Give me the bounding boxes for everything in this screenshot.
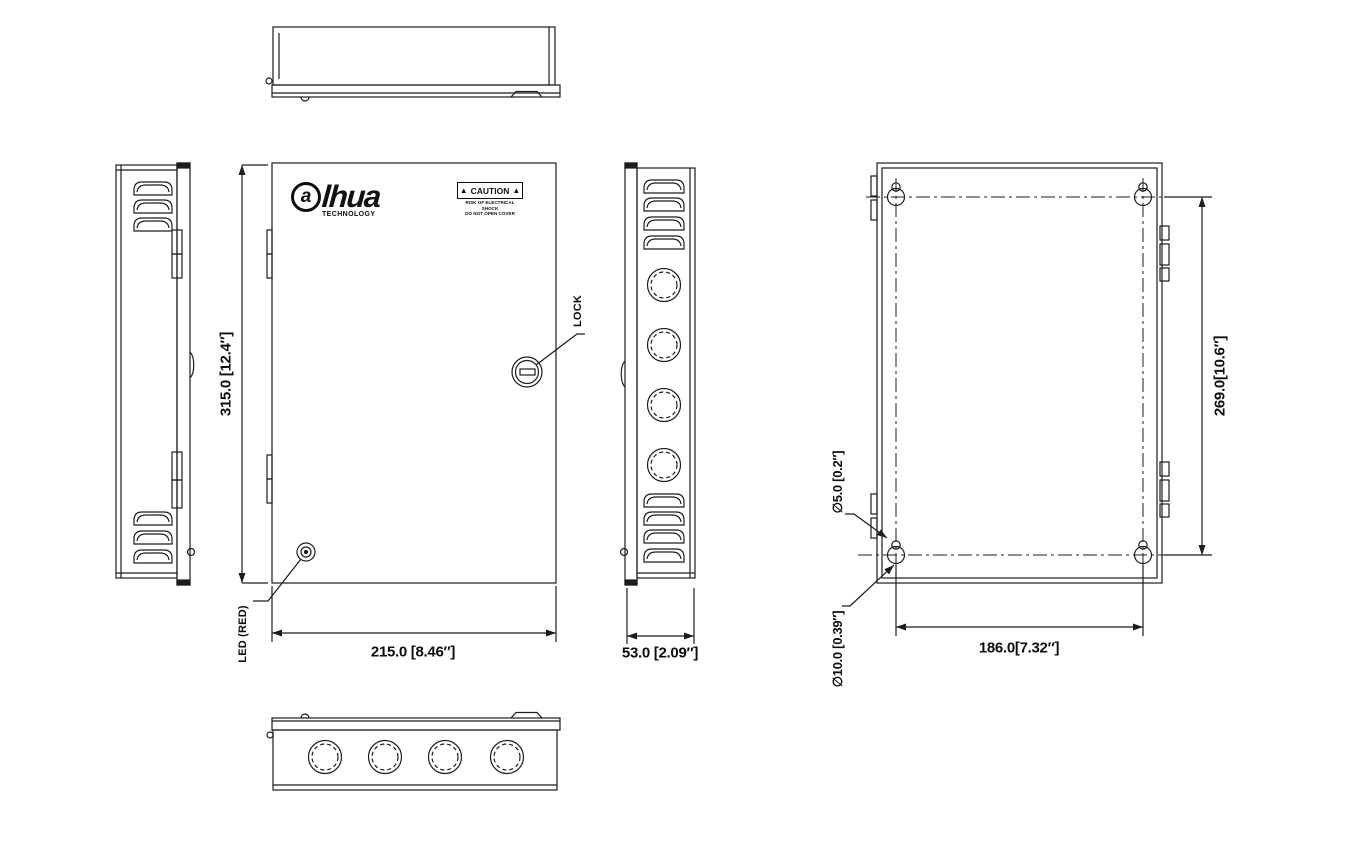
hole-small-diameter-label: ∅5.0 [0.2″] <box>830 451 846 514</box>
front-view <box>253 163 585 601</box>
right-side-view <box>621 163 696 585</box>
lock-leader-line <box>536 334 585 365</box>
hinge <box>267 254 272 278</box>
keyhole-mount-slots <box>888 183 1152 564</box>
warning-triangle-icon: ▲ <box>512 187 520 195</box>
engineering-drawing-page: 315.0 [12.4″] 215.0 [8.46″] 53.0 [2.09″]… <box>0 0 1356 855</box>
vent-louvers-top <box>644 180 684 249</box>
led-indicator-icon <box>297 543 315 561</box>
led-side <box>188 549 195 556</box>
warning-triangle-icon: ▲ <box>460 187 468 195</box>
bottom-view <box>267 713 560 791</box>
centerlines <box>858 178 1181 568</box>
edge-clips <box>871 176 1169 538</box>
hinge <box>267 455 272 479</box>
led-callout-label: LED (RED) <box>237 605 249 662</box>
vent-louvers-bottom <box>134 512 172 563</box>
hinge-pin-icon <box>267 732 273 738</box>
caution-line1: RISK OF ELECTRICAL SHOCK <box>457 200 523 211</box>
led-leader-line <box>253 559 301 601</box>
lock-bump <box>511 713 542 719</box>
logo-circled-a: a <box>291 182 321 212</box>
hinge <box>267 479 272 503</box>
dimension-lines <box>242 165 1212 644</box>
hole-large-diameter-label: ∅10.0 [0.39″] <box>830 611 846 688</box>
logo-wordmark: lhua <box>321 181 381 212</box>
caution-sticker: ▲ CAUTION ▲ RISK OF ELECTRICAL SHOCK DO … <box>457 182 523 217</box>
dimension-depth-label: 53.0 [2.09″] <box>622 645 698 662</box>
vent-louvers-bottom <box>644 494 684 562</box>
hole-small-leader-line <box>845 514 887 538</box>
top-view <box>266 27 560 101</box>
lock-bump <box>511 92 542 98</box>
dimension-height-label: 315.0 [12.4″] <box>218 332 235 416</box>
key-lock-icon <box>512 357 542 387</box>
left-side-view <box>116 163 195 585</box>
hole-large-leader-line <box>842 565 894 606</box>
knockout-holes <box>648 269 681 482</box>
knockout-holes <box>309 741 524 774</box>
dahua-logo: a lhua TECHNOLOGY <box>291 181 411 218</box>
dimension-mount-height-label: 269.0[10.6″] <box>1212 336 1229 416</box>
lock-callout-label: LOCK <box>572 295 584 327</box>
hinge <box>267 230 272 254</box>
led-side <box>621 549 628 556</box>
vent-louvers-top <box>134 182 172 231</box>
back-view <box>842 163 1181 606</box>
dimension-mount-width-label: 186.0[7.32″] <box>979 640 1059 657</box>
caution-line2: DO NOT OPEN COVER <box>457 211 523 217</box>
drawing-linework <box>0 0 1356 855</box>
caution-title: CAUTION <box>471 186 510 196</box>
dimension-width-label: 215.0 [8.46″] <box>371 644 455 661</box>
hinge-pin-icon <box>266 78 272 84</box>
